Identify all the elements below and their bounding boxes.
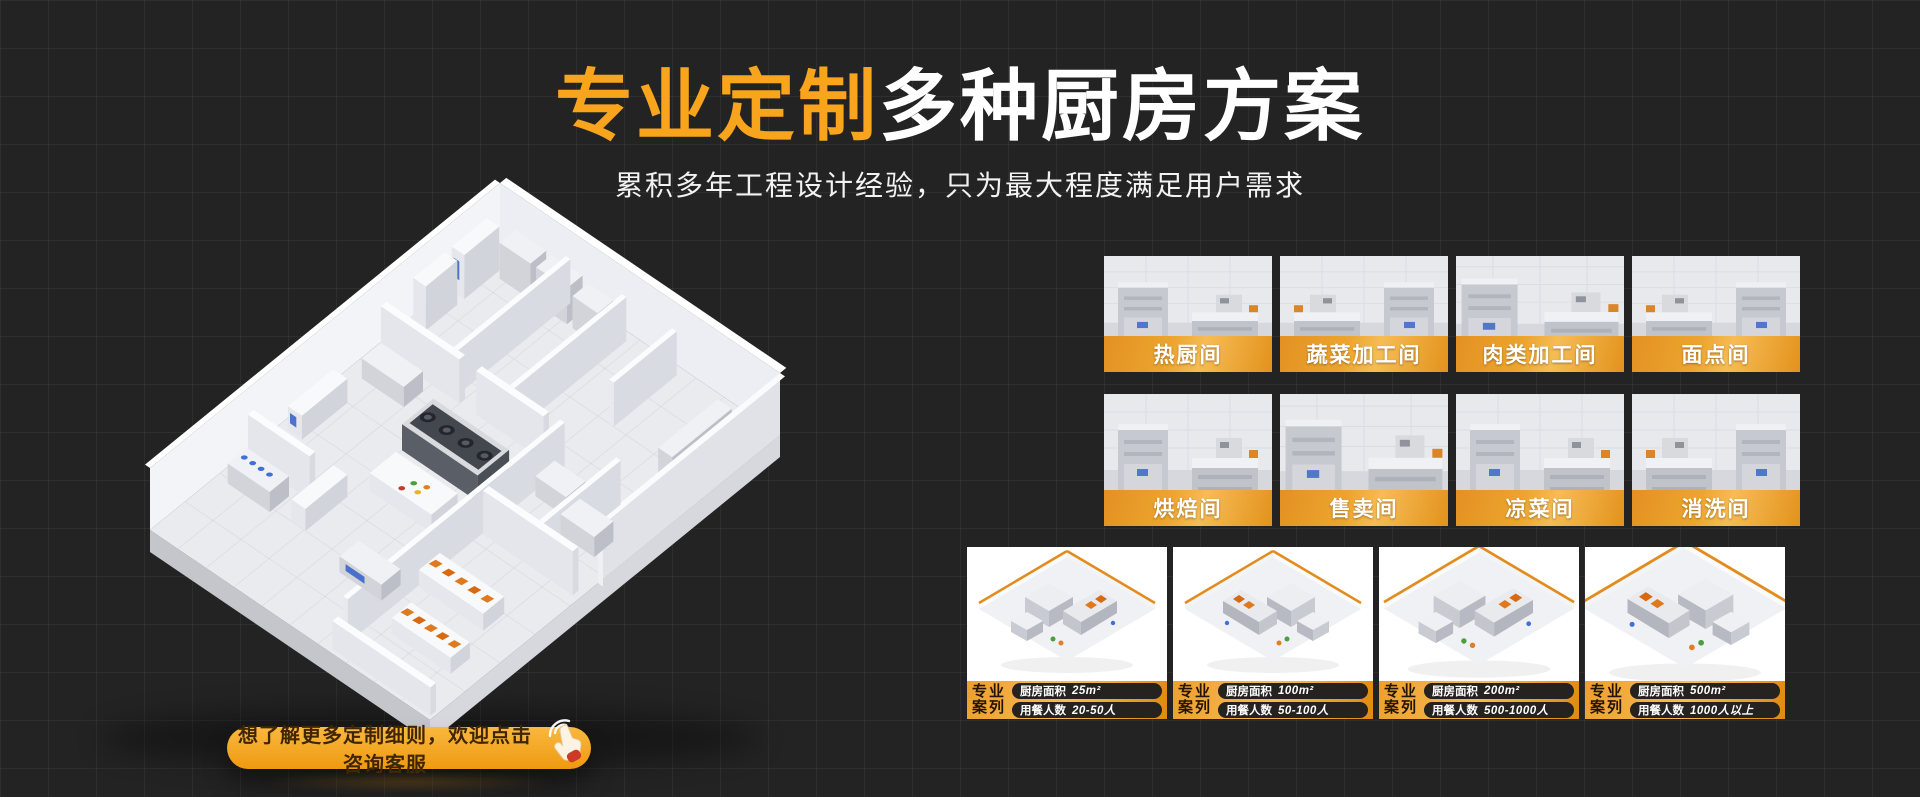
kitchen-area-pill: 厨房面积25m²	[1012, 683, 1162, 699]
cta-consult-button[interactable]: 想了解更多定制细则，欢迎点击咨询客服	[227, 727, 591, 769]
room-tile[interactable]: 蔬菜加工间	[1280, 256, 1448, 372]
room-tile[interactable]: 消洗间	[1632, 394, 1800, 526]
case-info-bar: 专业案列 厨房面积100m² 用餐人数50-100人	[1173, 681, 1373, 719]
room-tile[interactable]: 售卖间	[1280, 394, 1448, 526]
kitchen-area-pill: 厨房面积100m²	[1218, 683, 1368, 699]
room-label: 消洗间	[1632, 490, 1800, 526]
case-info-bar: 专业案列 厨房面积200m² 用餐人数500-1000人	[1379, 681, 1579, 719]
case-photo-illustration	[1173, 547, 1373, 681]
case-info-bar: 专业案列 厨房面积500m² 用餐人数1000人以上	[1585, 681, 1785, 719]
room-label: 售卖间	[1280, 490, 1448, 526]
room-label: 蔬菜加工间	[1280, 336, 1448, 372]
room-tile[interactable]: 面点间	[1632, 256, 1800, 372]
room-label: 面点间	[1632, 336, 1800, 372]
case-photo-illustration	[1379, 547, 1579, 686]
case-tile[interactable]: 专业案列 厨房面积200m² 用餐人数500-1000人	[1379, 547, 1579, 719]
kitchen-area-pill: 厨房面积500m²	[1630, 683, 1780, 699]
room-tile[interactable]: 热厨间	[1104, 256, 1272, 372]
click-hand-icon	[543, 718, 585, 764]
case-tag: 专业案列	[1384, 684, 1418, 716]
case-photo-illustration	[1585, 547, 1785, 691]
rooms-grid: 热厨间 蔬菜加工间 肉类加工间 面点间 烘焙间 售卖间 凉菜间 消洗间	[1104, 256, 1800, 526]
room-tile[interactable]: 烘焙间	[1104, 394, 1272, 526]
room-tile[interactable]: 肉类加工间	[1456, 256, 1624, 372]
case-tile[interactable]: 专业案列 厨房面积100m² 用餐人数50-100人	[1173, 547, 1373, 719]
diners-pill: 用餐人数50-100人	[1218, 702, 1368, 718]
room-tile[interactable]: 凉菜间	[1456, 394, 1624, 526]
case-info-bar: 专业案列 厨房面积25m² 用餐人数20-50人	[967, 681, 1167, 719]
room-label: 热厨间	[1104, 336, 1272, 372]
room-label: 肉类加工间	[1456, 336, 1624, 372]
room-label: 烘焙间	[1104, 490, 1272, 526]
kitchen-area-pill: 厨房面积200m²	[1424, 683, 1574, 699]
kitchen-floorplan-illustration	[0, 0, 1000, 797]
case-tag: 专业案列	[1178, 684, 1212, 716]
case-tile[interactable]: 专业案列 厨房面积25m² 用餐人数20-50人	[967, 547, 1167, 719]
case-row: 专业案列 厨房面积25m² 用餐人数20-50人 专业案列 厨房面积100m² …	[967, 547, 1785, 719]
cta-label: 想了解更多定制细则，欢迎点击咨询客服	[233, 719, 537, 777]
diners-pill: 用餐人数1000人以上	[1630, 702, 1780, 718]
room-label: 凉菜间	[1456, 490, 1624, 526]
case-photo-illustration	[967, 547, 1167, 681]
case-tag: 专业案列	[972, 684, 1006, 716]
diners-pill: 用餐人数20-50人	[1012, 702, 1162, 718]
page: 专业定制多种厨房方案 累积多年工程设计经验，只为最大程度满足用户需求 热厨间 蔬…	[0, 0, 1920, 797]
case-tag: 专业案列	[1590, 684, 1624, 716]
case-tile[interactable]: 专业案列 厨房面积500m² 用餐人数1000人以上	[1585, 547, 1785, 719]
diners-pill: 用餐人数500-1000人	[1424, 702, 1574, 718]
